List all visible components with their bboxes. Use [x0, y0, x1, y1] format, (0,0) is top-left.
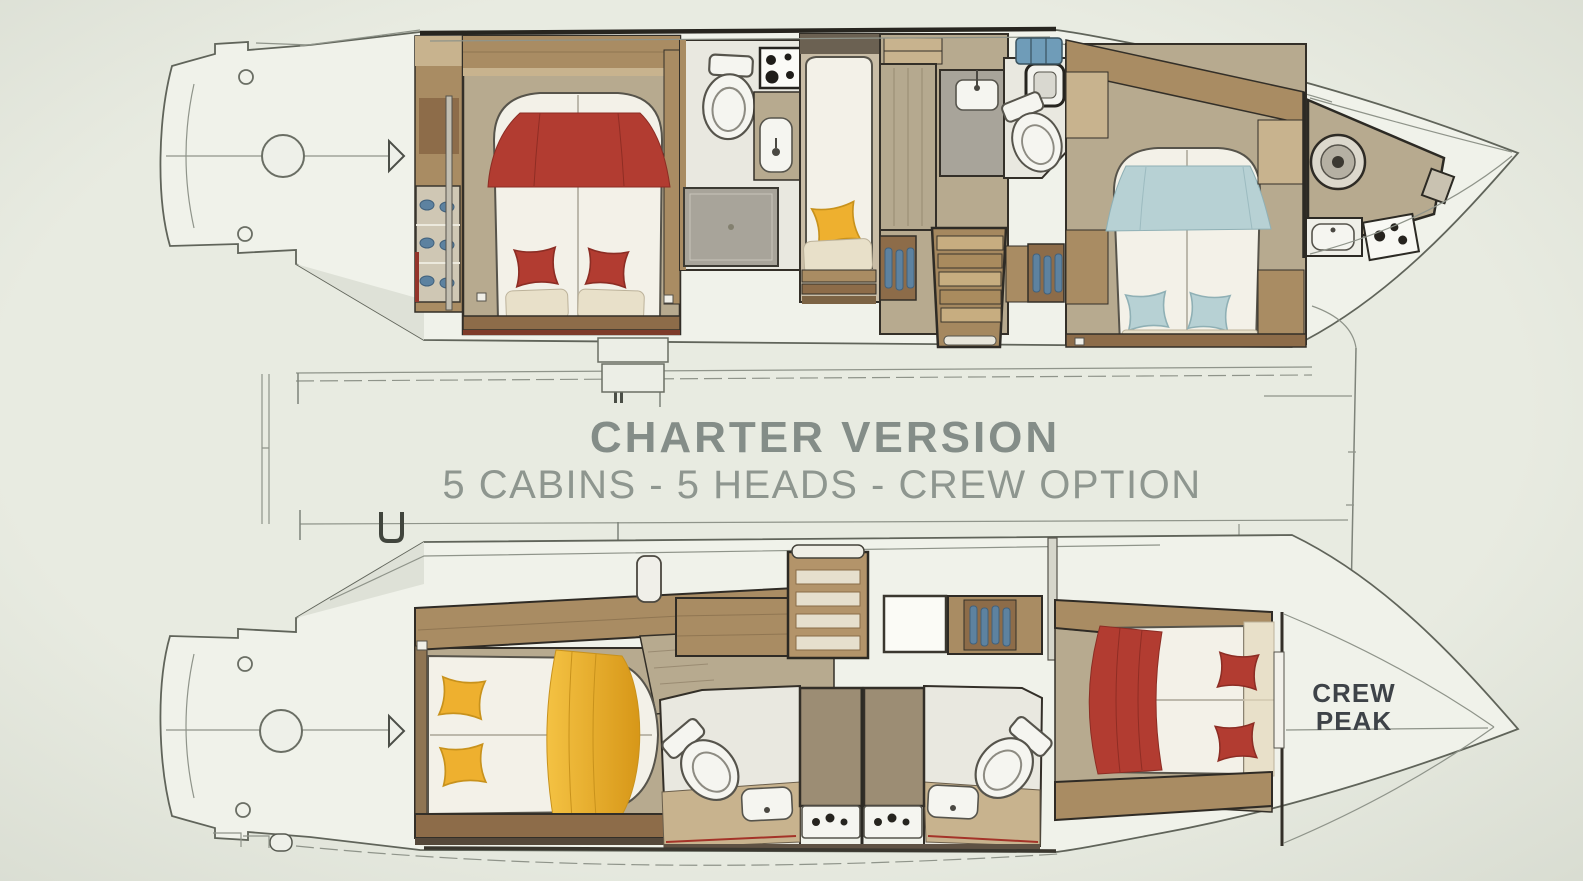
- liferaft: [1016, 38, 1062, 64]
- bulkhead-panel: [1274, 652, 1284, 748]
- cabinet: [419, 98, 459, 154]
- slide-photo: CHARTER VERSION 5 CABINS - 5 HEADS - CRE…: [0, 0, 1583, 881]
- faucet-icon: [772, 148, 780, 156]
- bed-blanket-red: [1089, 626, 1162, 774]
- faucet-icon: [1331, 228, 1336, 233]
- deck-hatch: [260, 710, 302, 752]
- wardrobe-column: [415, 36, 463, 312]
- pillow-yellow: [440, 744, 486, 786]
- bathrooms-bottom-hull: [657, 686, 1057, 850]
- cabinet: [1258, 120, 1304, 184]
- crew-peak-label-line1: CREW: [1312, 678, 1395, 708]
- locker-door: [1006, 246, 1028, 302]
- bed-blanket-blue: [1106, 166, 1271, 231]
- sink: [741, 787, 793, 822]
- pillow-blue: [1126, 291, 1169, 330]
- companionway-stairs: [932, 228, 1006, 347]
- cabinet: [1066, 230, 1108, 304]
- floor-trim: [415, 838, 690, 845]
- bathroom-forward-top-hull: [680, 40, 802, 270]
- pillow-yellow: [439, 677, 485, 719]
- cabin-aft-bottom-hull: [1055, 600, 1274, 820]
- faucet-icon: [950, 805, 956, 811]
- bookshelf: [788, 545, 868, 658]
- pillow-blue: [1188, 293, 1230, 331]
- toilet: [702, 54, 758, 140]
- cabinet: [1066, 72, 1108, 138]
- foot-step: [802, 284, 876, 294]
- bathroom-aft-top-hull: [997, 58, 1070, 179]
- faucet-icon: [974, 85, 980, 91]
- single-berth-top-hull: [800, 34, 880, 304]
- pillow-red: [1215, 723, 1257, 761]
- bed-base-sill: [415, 814, 690, 838]
- bed-base-sill: [1066, 334, 1306, 347]
- wall-trim: [463, 68, 680, 76]
- bed-blanket-red: [488, 113, 670, 187]
- cooktop: [760, 48, 802, 88]
- shower-drain: [728, 224, 734, 230]
- latch: [417, 641, 427, 650]
- sink: [927, 785, 979, 820]
- catamaran-deck-plan: CHARTER VERSION 5 CABINS - 5 HEADS - CRE…: [0, 0, 1583, 881]
- cabin-aft-top-hull: [1066, 40, 1306, 347]
- latch: [664, 295, 673, 303]
- hanging-locker-blue: [1028, 244, 1064, 302]
- cabinet: [1258, 270, 1304, 336]
- floor-trim: [463, 330, 680, 335]
- washing-machine: [1311, 135, 1365, 189]
- latch: [477, 293, 486, 301]
- pillow-red: [514, 247, 558, 286]
- latch: [1075, 338, 1084, 345]
- cabinet-row: [676, 598, 788, 656]
- foot-step: [802, 296, 876, 304]
- hanging-locker-blue: [880, 236, 916, 300]
- wall-strip: [415, 646, 427, 822]
- cooktop: [1363, 214, 1419, 260]
- deck-hatch: [262, 135, 304, 177]
- cabin-forward-top-hull: [463, 36, 680, 335]
- crew-peak-label-line2: PEAK: [1316, 706, 1392, 736]
- bed-base-sill: [463, 316, 680, 330]
- red-trim: [415, 252, 419, 302]
- mirror-strip: [446, 96, 452, 310]
- fender: [637, 556, 661, 602]
- mirror-panel: [884, 596, 946, 652]
- stern-cleat: [270, 834, 292, 851]
- plan-title: CHARTER VERSION: [590, 413, 1060, 462]
- deck-box: [598, 338, 668, 392]
- hanging-locker-blue: [948, 596, 1042, 654]
- faucet-icon: [764, 807, 770, 813]
- foot-step: [802, 270, 876, 282]
- pillow-red: [1217, 652, 1258, 689]
- plan-subtitle: 5 CABINS - 5 HEADS - CREW OPTION: [442, 463, 1201, 507]
- head-wall: [800, 34, 880, 54]
- pillow-red: [586, 248, 629, 287]
